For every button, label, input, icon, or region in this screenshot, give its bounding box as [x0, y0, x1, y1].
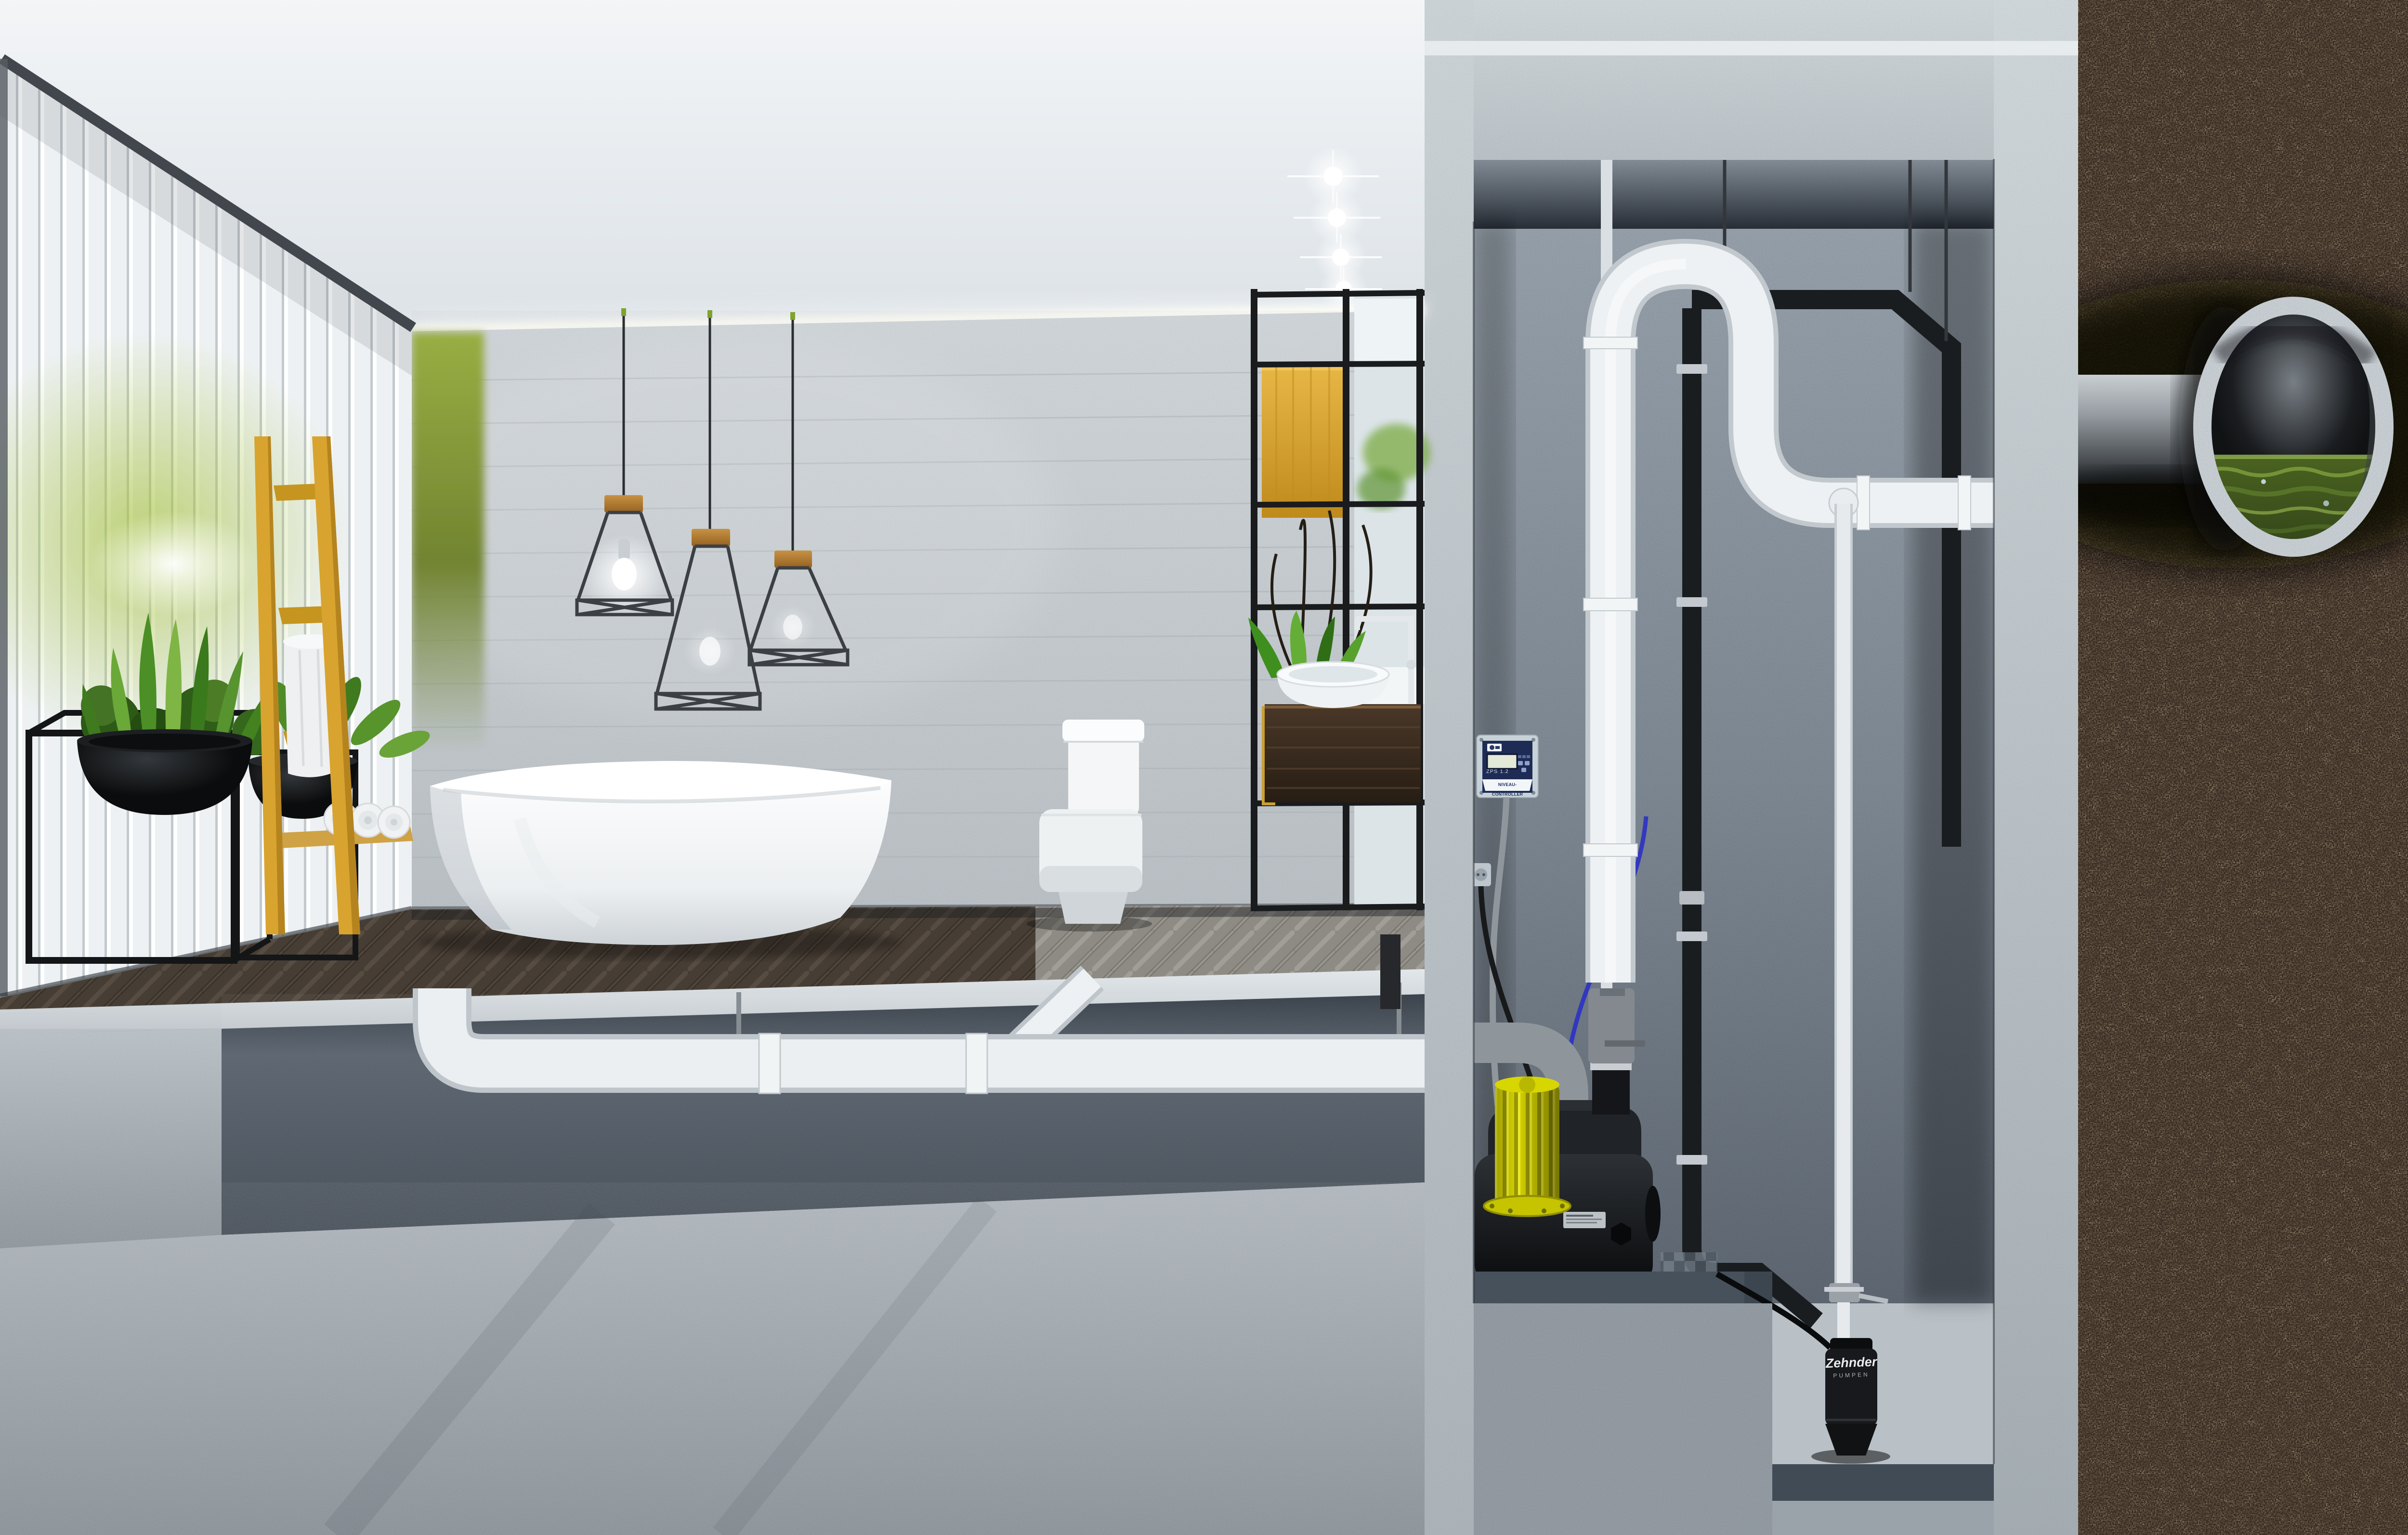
pit-floor	[1772, 1464, 1994, 1501]
pipe-coupling	[1584, 598, 1637, 611]
controller-model-label: ZPS 1.2	[1486, 769, 1509, 774]
controller-banner-label: NIVEAU- CONTROLLER	[1485, 780, 1530, 789]
controller-enter-button	[1521, 768, 1526, 772]
pipe-clamp	[1676, 931, 1707, 941]
mirror	[1354, 297, 1425, 905]
shaft-ledge-floor	[1474, 1272, 1772, 1303]
submersible-pump-brand: Zehnder	[1824, 1354, 1878, 1371]
pit-floor-slab-cut	[1772, 1501, 1994, 1535]
controller-button	[1522, 755, 1526, 758]
pipe-coupling	[966, 1034, 987, 1093]
valve-lever	[1605, 1040, 1645, 1047]
pipe-coupling	[759, 1034, 780, 1093]
wood-panel	[1262, 365, 1346, 518]
cutaway-scene: ZPS 1.2 NIVEAU- CONTROLLER Zehnder PUMPE…	[0, 0, 2408, 1535]
controller-button	[1518, 755, 1521, 758]
recessed-spotlight	[1323, 167, 1343, 186]
pipe-clamp	[1676, 364, 1707, 374]
pipe-coupling	[1958, 476, 1971, 530]
pipe-clamp	[1676, 1155, 1707, 1165]
controller-button	[1527, 755, 1530, 758]
controller-arrow-left-button	[1518, 761, 1523, 765]
pipe-coupling	[1857, 476, 1870, 530]
bathroom	[0, 0, 1430, 1535]
pump-motor	[1484, 1076, 1570, 1216]
controller-arrow-right-button	[1525, 761, 1530, 765]
controller-lcd	[1487, 754, 1517, 769]
utility-shaft	[1462, 144, 2003, 1501]
toilet-base	[1059, 892, 1128, 924]
pipe-union-fitting	[1679, 891, 1704, 905]
recessed-spotlight	[1332, 249, 1349, 266]
green-accent-wall	[412, 332, 484, 751]
pipe-clamp	[1676, 597, 1707, 607]
recessed-spotlight	[1328, 209, 1346, 227]
toilet-tank-lid	[1062, 720, 1144, 742]
pipe-coupling	[1584, 844, 1637, 856]
motor-flange	[1484, 1196, 1570, 1216]
